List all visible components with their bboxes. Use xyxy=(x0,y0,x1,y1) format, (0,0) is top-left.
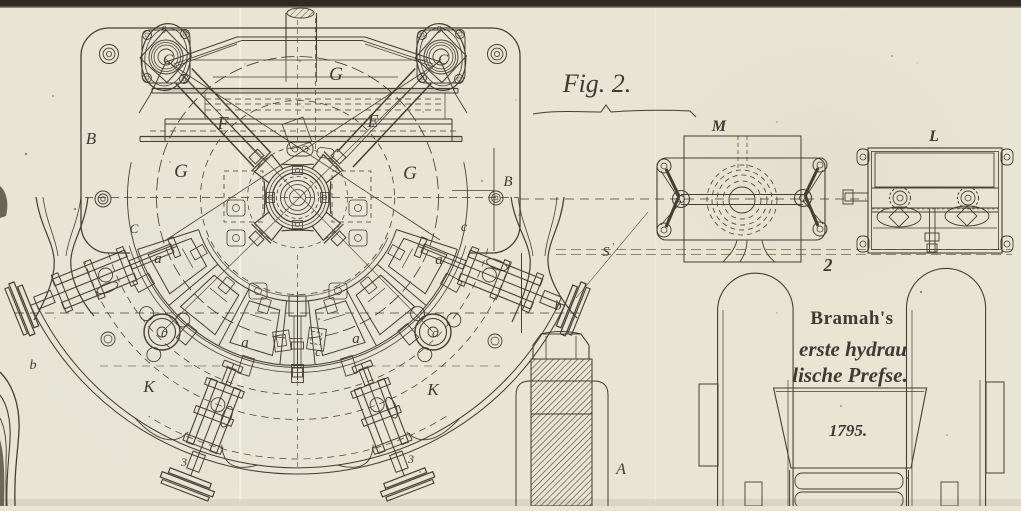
svg-text:1795.: 1795. xyxy=(829,421,867,440)
svg-text:M: M xyxy=(711,118,727,135)
svg-text:erste hydrau: erste hydrau xyxy=(799,337,907,361)
svg-text:Bramah's: Bramah's xyxy=(810,308,893,329)
svg-text:Fig. 2.: Fig. 2. xyxy=(562,69,632,98)
svg-text:G: G xyxy=(329,64,343,85)
svg-text:a: a xyxy=(154,251,162,267)
svg-text:3: 3 xyxy=(180,455,187,469)
svg-text:F: F xyxy=(217,113,230,133)
svg-text:a: a xyxy=(352,331,360,347)
svg-text:2: 2 xyxy=(823,255,833,275)
svg-text:A: A xyxy=(615,461,626,478)
svg-text:G: G xyxy=(403,163,417,184)
svg-text:B: B xyxy=(86,129,97,148)
svg-text:c: c xyxy=(432,325,438,340)
svg-text:C: C xyxy=(163,52,174,68)
svg-text:E: E xyxy=(367,111,379,131)
svg-text:C: C xyxy=(438,52,449,68)
svg-text:b: b xyxy=(555,299,562,314)
svg-text:9: 9 xyxy=(437,25,442,36)
svg-text:c: c xyxy=(315,344,321,359)
svg-text:K: K xyxy=(426,380,440,399)
svg-text:b: b xyxy=(30,358,37,373)
svg-text:c: c xyxy=(461,220,468,235)
svg-text:9: 9 xyxy=(162,25,167,36)
svg-text:lische Prefse.: lische Prefse. xyxy=(792,363,907,387)
svg-text:3: 3 xyxy=(407,452,414,466)
svg-text:G: G xyxy=(174,161,188,182)
svg-text:a: a xyxy=(241,335,249,351)
svg-text:a: a xyxy=(435,252,443,268)
svg-text:c: c xyxy=(161,325,167,340)
svg-text:K: K xyxy=(142,377,156,396)
svg-text:B: B xyxy=(503,174,512,190)
svg-text:L: L xyxy=(928,128,939,145)
svg-text:S: S xyxy=(603,245,610,260)
svg-text:C: C xyxy=(130,221,139,236)
